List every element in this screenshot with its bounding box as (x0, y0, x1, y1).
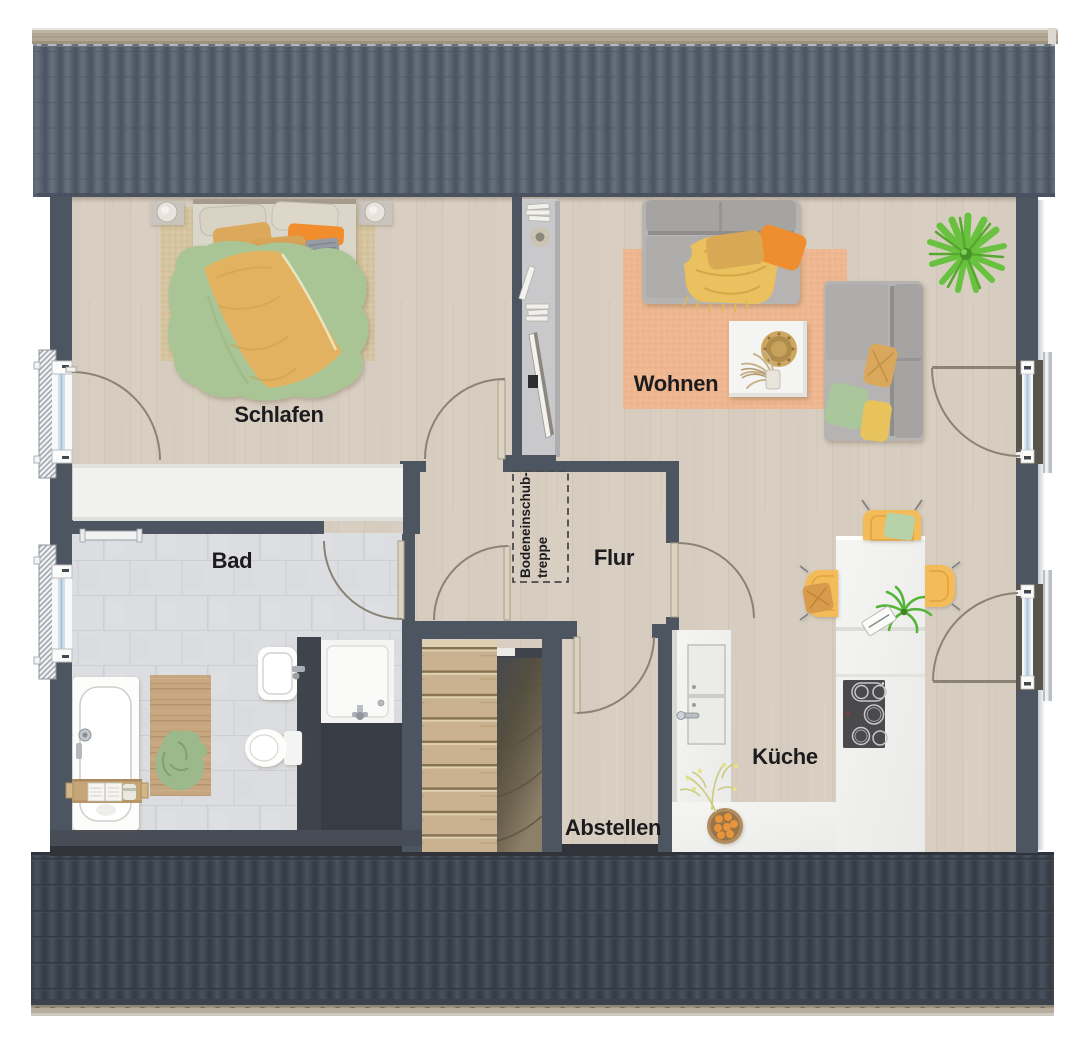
svg-text:Schlafen: Schlafen (234, 402, 323, 427)
svg-text:Bad: Bad (212, 548, 253, 573)
svg-text:Küche: Küche (752, 744, 818, 769)
svg-text:Flur: Flur (594, 545, 635, 570)
svg-text:Abstellen: Abstellen (565, 815, 661, 840)
svg-text:Wohnen: Wohnen (634, 371, 719, 396)
